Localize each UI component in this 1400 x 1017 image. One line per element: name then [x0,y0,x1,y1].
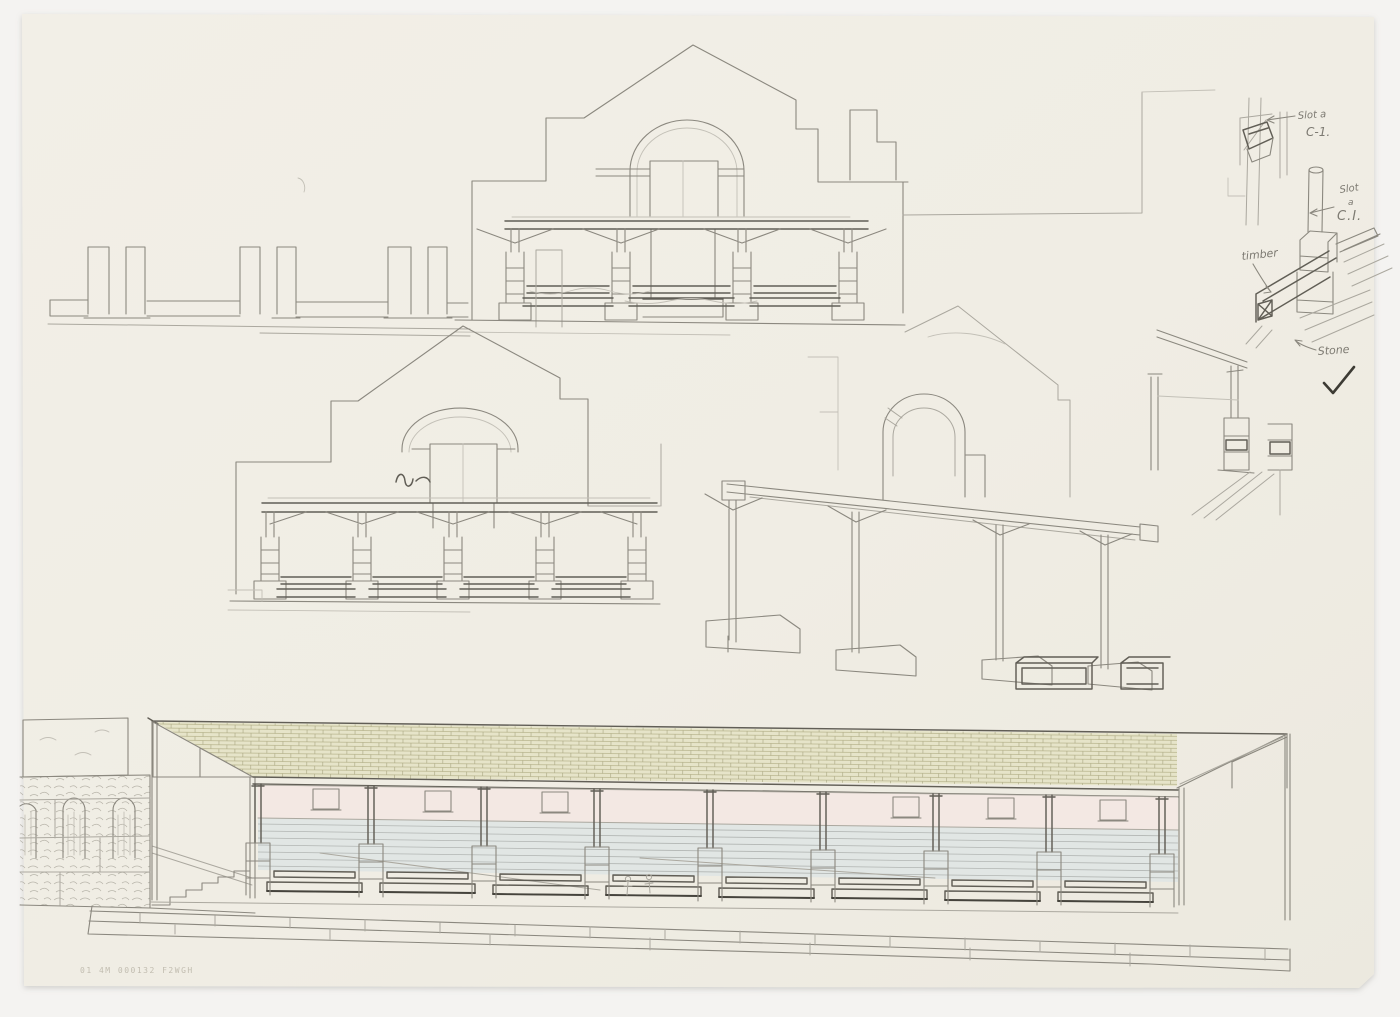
annotation-upper-line1: Slot a [1297,109,1326,122]
annotation-lower-line3: C.I. [1337,209,1362,224]
annotation-lower-line2: a [1348,198,1354,208]
accession-stamp: 01 4M 000132 F2WGH [80,966,194,975]
annotation-stone: Stone [1317,343,1350,358]
annotation-upper-line2: C-1. [1306,125,1330,139]
scanned-sketch-sheet: Slot a C-1. Slot a C.I. timber Stone [0,0,1400,1017]
drawing-svg: Slot a C-1. Slot a C.I. timber Stone [0,0,1400,1017]
